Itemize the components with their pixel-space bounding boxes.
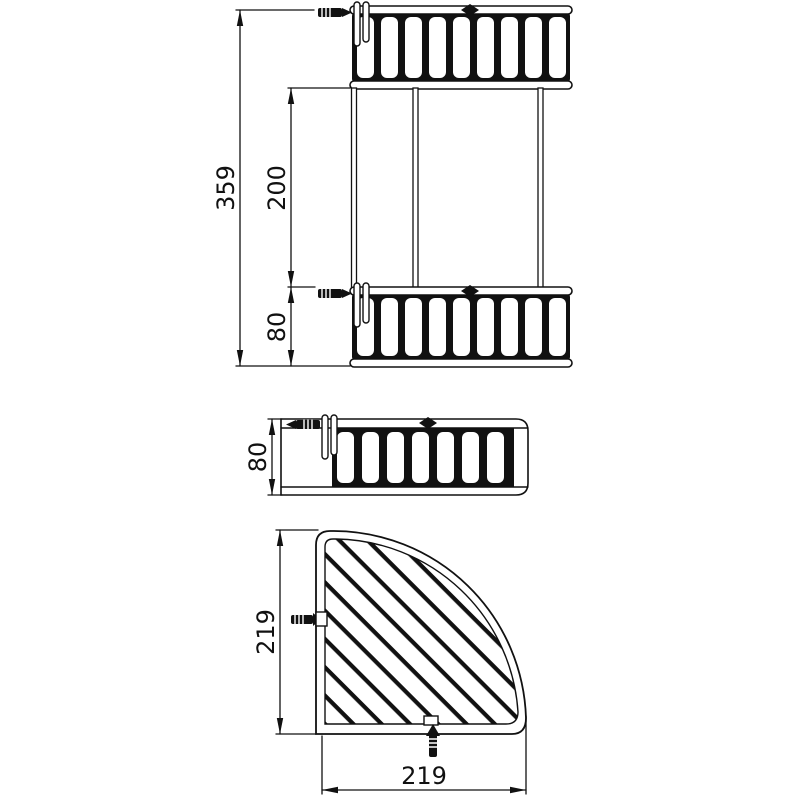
arrowhead	[237, 10, 243, 26]
front-bottom-basket	[318, 283, 572, 367]
basket-wire-gap	[453, 17, 470, 78]
basket-wire-gap	[381, 298, 398, 356]
basket-wire-gap	[381, 17, 398, 78]
basket-wire-gap	[549, 298, 566, 356]
arrowhead	[277, 718, 283, 734]
basket-wire-gap	[487, 432, 504, 483]
basket-wire-gap	[362, 432, 379, 483]
wall-clamp-bar	[331, 415, 337, 455]
basket-wire-gap	[501, 17, 518, 78]
basket-wire-gap	[525, 298, 542, 356]
wall-clamp-bar	[363, 2, 369, 42]
arrowhead	[237, 350, 243, 366]
post	[413, 88, 418, 288]
plan-view: 219 219	[252, 530, 526, 794]
connecting-posts	[352, 88, 544, 288]
side-view: 80	[244, 415, 528, 495]
dim-label-width: 219	[401, 762, 447, 790]
basket-wire-gap	[429, 298, 446, 356]
wall-clamp-bar	[363, 283, 369, 323]
basket-wire-gap	[525, 17, 542, 78]
wall-mount-screw-icon	[318, 8, 352, 17]
dim-label-total-height: 359	[212, 165, 240, 211]
basket-wire-gap	[501, 298, 518, 356]
basket-wire-gap	[549, 17, 566, 78]
basket-wire-grid	[325, 539, 518, 724]
basket-wire-gap	[462, 432, 479, 483]
wall-mount-screw-icon	[424, 716, 440, 757]
wall-clamp-bar	[354, 283, 360, 327]
arrowhead	[269, 419, 275, 435]
arrowhead	[288, 350, 294, 366]
arrowhead	[322, 787, 338, 793]
basket-wire-cells	[357, 298, 566, 356]
front-top-basket	[318, 2, 572, 89]
basket-wire-cells	[357, 17, 566, 78]
dimension-219-vertical: 219	[252, 530, 318, 734]
drawing-canvas: 359 200 80	[0, 0, 800, 800]
dim-label-depth: 219	[252, 609, 280, 655]
basket-wire-gap	[337, 432, 354, 483]
basket-wire-cells	[337, 432, 504, 483]
dimension-80-front: 80	[263, 287, 294, 366]
dim-label-basket-height: 80	[263, 312, 291, 343]
arrowhead	[288, 88, 294, 104]
post	[538, 88, 543, 288]
dim-label-post-height: 200	[263, 165, 291, 211]
basket-wire-gap	[412, 432, 429, 483]
basket-wire-gap	[429, 17, 446, 78]
technical-drawing: 359 200 80	[0, 0, 800, 800]
post	[352, 88, 357, 288]
dim-label-basket-height: 80	[244, 442, 272, 473]
arrowhead	[277, 530, 283, 546]
basket-wire-gap	[477, 17, 494, 78]
basket-wire-gap	[453, 298, 470, 356]
arrowhead	[288, 271, 294, 287]
basket-wire-gap	[405, 17, 422, 78]
basket-wire-gap	[405, 298, 422, 356]
basket-wire-gap	[387, 432, 404, 483]
dimension-80-side: 80	[244, 419, 282, 495]
basket-bottom-rim	[350, 359, 572, 367]
wall-mount-screw-icon	[318, 289, 352, 298]
wall-clamp-bar	[354, 2, 360, 46]
front-view: 359 200 80	[212, 2, 572, 367]
arrowhead	[510, 787, 526, 793]
basket-wire-gap	[477, 298, 494, 356]
arrowhead	[269, 479, 275, 495]
arrowhead	[288, 287, 294, 303]
wall-clamp-bar	[322, 415, 328, 459]
wall-mount-screw-icon	[291, 612, 327, 626]
basket-wire-gap	[437, 432, 454, 483]
